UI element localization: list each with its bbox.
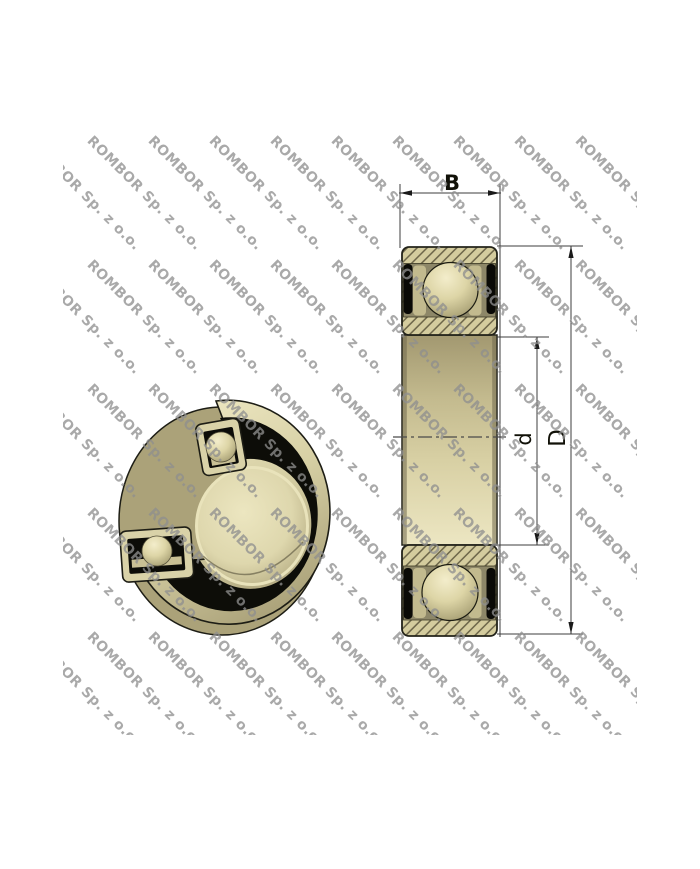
- bearing-cross-section: [393, 247, 506, 636]
- seal-left-top: [404, 264, 413, 314]
- arrow-D-up: [568, 246, 573, 258]
- bore-edge-left: [403, 336, 407, 544]
- ball-top: [423, 263, 478, 318]
- dim-label-B: B: [444, 171, 460, 195]
- cut-section-top: [195, 418, 247, 477]
- bore-face: [402, 335, 497, 545]
- arrow-B-left: [400, 190, 412, 195]
- bore-edge-right: [492, 336, 496, 544]
- dim-label-D: D: [545, 429, 571, 447]
- arrow-B-right: [488, 190, 500, 195]
- arrow-d-up: [534, 337, 539, 349]
- dim-label-d: d: [512, 432, 536, 445]
- ball-bottom: [422, 565, 478, 621]
- bore-interior: [198, 469, 306, 583]
- ring-section-top: [402, 247, 497, 335]
- seal-right-bottom: [487, 568, 496, 619]
- seal-right-top: [487, 264, 496, 314]
- bearing-3d-view: [119, 400, 330, 635]
- seal-left-bottom: [404, 568, 413, 619]
- arrow-D-down: [568, 622, 573, 634]
- arrow-d-down: [534, 533, 539, 545]
- bearing-diagram: B d D: [0, 0, 700, 869]
- ring-section-bottom: [402, 545, 497, 636]
- cut-section-lower: [120, 527, 194, 583]
- bearing-product-image: B d D ROMBOR Sp. z o.o.ROMBOR Sp. z o.o.…: [0, 0, 700, 869]
